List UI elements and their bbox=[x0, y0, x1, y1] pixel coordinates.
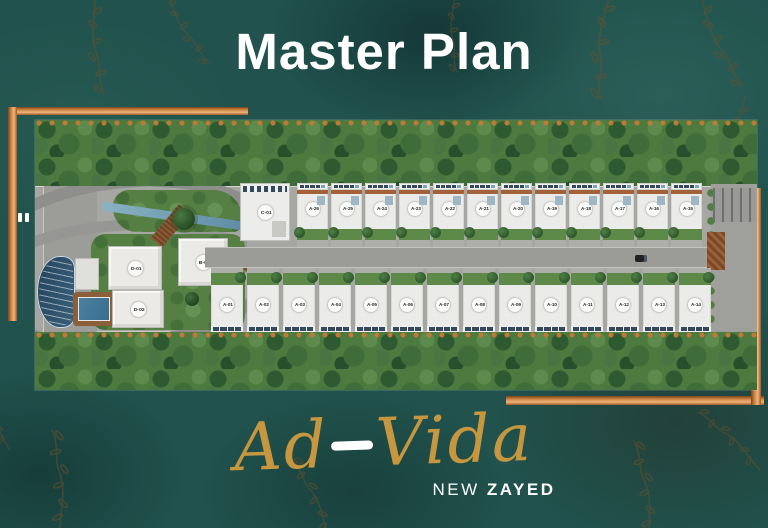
solar-panel bbox=[696, 327, 702, 331]
solar-panel bbox=[661, 185, 665, 188]
solar-panel bbox=[559, 185, 563, 188]
villa-window bbox=[317, 196, 325, 205]
villa-roof-panels bbox=[603, 183, 634, 190]
villa-body: A-12 bbox=[607, 285, 639, 326]
villa-roof-panels bbox=[365, 183, 396, 190]
villa-roof-panels bbox=[297, 183, 328, 190]
villa-roof-panels bbox=[571, 326, 603, 332]
parking-area bbox=[711, 184, 757, 332]
tree-icon bbox=[294, 227, 305, 238]
solar-panel bbox=[543, 185, 547, 188]
brand-logo: AdVida NEW ZAYED bbox=[0, 407, 768, 500]
unit-label-badge: A-13 bbox=[652, 298, 666, 312]
unit-label-badge: A-01 bbox=[220, 298, 234, 312]
villa-window bbox=[521, 196, 529, 205]
villa-roof-panels bbox=[679, 326, 711, 332]
solar-panel bbox=[402, 185, 406, 188]
villa-driveway bbox=[433, 240, 464, 247]
villa-roof-panels bbox=[637, 183, 668, 190]
car bbox=[635, 255, 647, 262]
unit-label-text: A-14 bbox=[691, 301, 699, 309]
tree-icon bbox=[396, 227, 407, 238]
solar-panel bbox=[429, 327, 435, 331]
solar-panel bbox=[378, 185, 382, 188]
solar-panel bbox=[321, 185, 325, 188]
unit-label-badge: A-05 bbox=[364, 298, 378, 312]
villa-unit-a-14: A-14 bbox=[679, 268, 711, 332]
villa-body: A-13 bbox=[643, 285, 675, 326]
unit-label-badge: A-02 bbox=[256, 298, 270, 312]
clubhouse-building: C-01 bbox=[240, 183, 290, 241]
solar-panel bbox=[554, 185, 558, 188]
villa-roof-panels bbox=[331, 183, 362, 190]
solar-panel bbox=[451, 327, 457, 331]
solar-panel bbox=[415, 327, 421, 331]
solar-panel bbox=[465, 327, 471, 331]
villa-body: A-14 bbox=[679, 285, 711, 326]
villa-body: A-20 bbox=[501, 194, 532, 229]
unit-label-badge: D-02 bbox=[131, 302, 146, 317]
unit-label-badge: A-03 bbox=[292, 298, 306, 312]
unit-label-text: A-19 bbox=[546, 205, 554, 213]
solar-panel bbox=[544, 327, 550, 331]
villa-roof-panels bbox=[535, 183, 566, 190]
unit-label-text: A-17 bbox=[614, 205, 622, 213]
tree-icon bbox=[487, 272, 498, 283]
villa-unit-a-26: A-26 bbox=[297, 183, 328, 247]
villa-driveway bbox=[331, 240, 362, 247]
villa-body: A-05 bbox=[355, 285, 387, 326]
villa-roof-panels bbox=[643, 326, 675, 332]
unit-label-badge: A-14 bbox=[688, 298, 702, 312]
unit-label-badge: A-08 bbox=[472, 298, 486, 312]
villa-body: A-07 bbox=[427, 285, 459, 326]
villa-garden bbox=[283, 273, 315, 285]
unit-label-text: A-11 bbox=[583, 301, 591, 309]
tree-icon bbox=[271, 272, 282, 283]
villa-garden bbox=[607, 273, 639, 285]
tree-icon bbox=[703, 272, 714, 283]
villa-body: A-04 bbox=[319, 285, 351, 326]
villa-body: A-06 bbox=[391, 285, 423, 326]
villa-unit-a-01: A-01 bbox=[211, 268, 243, 332]
solar-panel bbox=[407, 185, 411, 188]
tree-icon bbox=[559, 272, 570, 283]
villa-roof-panels bbox=[607, 326, 639, 332]
villa-row-north: C-01 A-26A-25A-24A-23A-22A-21A-20A-19A-1… bbox=[240, 183, 702, 247]
villa-garden bbox=[427, 273, 459, 285]
tree-icon bbox=[379, 272, 390, 283]
solar-panel bbox=[487, 327, 493, 331]
solar-panel bbox=[310, 185, 314, 188]
solar-panel bbox=[355, 185, 359, 188]
unit-label-text: A-13 bbox=[655, 301, 663, 309]
solar-panel bbox=[559, 327, 565, 331]
pergola bbox=[707, 232, 725, 270]
solar-panel bbox=[470, 185, 474, 188]
villa-window bbox=[419, 196, 427, 205]
villa-body: A-23 bbox=[399, 194, 430, 229]
tree-icon bbox=[532, 227, 543, 238]
solar-panel bbox=[418, 185, 422, 188]
unit-label-text: A-20 bbox=[512, 205, 520, 213]
unit-label-badge: A-11 bbox=[580, 298, 594, 312]
villa-body: A-17 bbox=[603, 194, 634, 229]
solar-panel bbox=[372, 327, 378, 331]
solar-panel bbox=[305, 185, 309, 188]
villa-driveway bbox=[365, 240, 396, 247]
solar-panel bbox=[486, 185, 490, 188]
solar-panel bbox=[660, 327, 666, 331]
solar-panel bbox=[537, 327, 543, 331]
villa-garden bbox=[365, 229, 396, 240]
villa-driveway bbox=[671, 240, 702, 247]
villa-window bbox=[385, 196, 393, 205]
solar-panel bbox=[436, 185, 440, 188]
solar-panel bbox=[588, 185, 592, 188]
villa-unit-a-17: A-17 bbox=[603, 183, 634, 247]
villa-roof-panels bbox=[211, 326, 243, 332]
villa-roof-panels bbox=[247, 326, 279, 332]
solar-panel bbox=[446, 185, 450, 188]
solar-panel bbox=[480, 185, 484, 188]
solar-panel bbox=[681, 327, 687, 331]
swimming-pool bbox=[78, 297, 110, 321]
unit-label-text: A-04 bbox=[331, 301, 339, 309]
unit-label-text: A-08 bbox=[475, 301, 483, 309]
villa-row-south: A-01A-02A-03A-04A-05A-06A-07A-08A-09A-10… bbox=[211, 268, 711, 332]
tree-icon bbox=[328, 227, 339, 238]
villa-window bbox=[657, 196, 665, 205]
unit-label-text: A-22 bbox=[444, 205, 452, 213]
villa-unit-a-18: A-18 bbox=[569, 183, 600, 247]
solar-panel bbox=[256, 327, 262, 331]
villa-window bbox=[589, 196, 597, 205]
solar-panel bbox=[504, 185, 508, 188]
solar-panel bbox=[321, 327, 327, 331]
unit-label-text: A-15 bbox=[682, 205, 690, 213]
villa-roof-panels bbox=[427, 326, 459, 332]
villa-window bbox=[623, 196, 631, 205]
villa-body: A-03 bbox=[283, 285, 315, 326]
villa-garden bbox=[679, 273, 711, 285]
solar-panel bbox=[684, 185, 688, 188]
solar-panel bbox=[645, 327, 651, 331]
villa-garden bbox=[391, 273, 423, 285]
solar-panel bbox=[364, 327, 370, 331]
villa-garden bbox=[501, 229, 532, 240]
unit-label-text: A-18 bbox=[580, 205, 588, 213]
solar-panel bbox=[336, 327, 342, 331]
solar-panel bbox=[538, 185, 542, 188]
villa-garden bbox=[569, 229, 600, 240]
solar-panel bbox=[695, 185, 699, 188]
villa-body: A-25 bbox=[331, 194, 362, 229]
villa-unit-a-24: A-24 bbox=[365, 183, 396, 247]
tree-icon bbox=[668, 227, 679, 238]
villa-body: A-15 bbox=[671, 194, 702, 229]
villa-unit-a-20: A-20 bbox=[501, 183, 532, 247]
villa-unit-a-13: A-13 bbox=[643, 268, 675, 332]
solar-panel bbox=[656, 185, 660, 188]
solar-panel bbox=[609, 327, 615, 331]
tree-icon bbox=[566, 227, 577, 238]
solar-panel bbox=[344, 185, 348, 188]
villa-window bbox=[487, 196, 495, 205]
villa-body: A-22 bbox=[433, 194, 464, 229]
villa-garden bbox=[643, 273, 675, 285]
solar-panel bbox=[616, 185, 620, 188]
tree-icon bbox=[634, 227, 645, 238]
villa-driveway bbox=[637, 240, 668, 247]
frame-accent-left-vertical bbox=[8, 107, 17, 321]
solar-panel bbox=[572, 185, 576, 188]
unit-label-text: A-06 bbox=[403, 301, 411, 309]
villa-body: A-21 bbox=[467, 194, 498, 229]
villa-garden bbox=[463, 273, 495, 285]
solar-panel bbox=[509, 185, 513, 188]
villa-unit-a-21: A-21 bbox=[467, 183, 498, 247]
unit-label-text: A-16 bbox=[648, 205, 656, 213]
entrance-gate-mark bbox=[25, 213, 29, 222]
unit-label-text: A-12 bbox=[619, 301, 627, 309]
solar-panel bbox=[472, 327, 478, 331]
building-d01: D-01 bbox=[108, 246, 162, 290]
villa-roof-panels bbox=[499, 326, 531, 332]
villa-body: A-08 bbox=[463, 285, 495, 326]
solar-panel bbox=[384, 185, 388, 188]
villa-roof-panels bbox=[391, 326, 423, 332]
tree-icon bbox=[307, 272, 318, 283]
villa-roof-panels bbox=[569, 183, 600, 190]
villa-roof-panels bbox=[283, 326, 315, 332]
solar-panel bbox=[316, 185, 320, 188]
solar-panel bbox=[667, 327, 673, 331]
north-forest-band bbox=[35, 120, 757, 186]
solar-panel bbox=[595, 327, 601, 331]
villa-unit-a-19: A-19 bbox=[535, 183, 566, 247]
villa-body: A-01 bbox=[211, 285, 243, 326]
villa-driveway bbox=[297, 240, 328, 247]
solar-panel bbox=[373, 185, 377, 188]
solar-panel bbox=[631, 327, 637, 331]
unit-label-badge: A-07 bbox=[436, 298, 450, 312]
solar-panel bbox=[690, 185, 694, 188]
solar-panel bbox=[588, 327, 594, 331]
villa-garden bbox=[637, 229, 668, 240]
solar-panel bbox=[514, 185, 518, 188]
unit-label-text: A-26 bbox=[308, 205, 316, 213]
brand-hyphen bbox=[331, 440, 373, 450]
unit-label-text: A-03 bbox=[295, 301, 303, 309]
villa-garden bbox=[499, 273, 531, 285]
tree-icon bbox=[464, 227, 475, 238]
tree-icon bbox=[451, 272, 462, 283]
solar-panel bbox=[652, 327, 658, 331]
solar-panel bbox=[480, 327, 486, 331]
villa-garden bbox=[603, 229, 634, 240]
unit-label-text: A-10 bbox=[547, 301, 555, 309]
unit-label-badge: A-12 bbox=[616, 298, 630, 312]
page-title: Master Plan bbox=[0, 22, 768, 81]
villa-roof-panels bbox=[319, 326, 351, 332]
tree-icon bbox=[600, 227, 611, 238]
villa-window bbox=[691, 196, 699, 205]
solar-panel bbox=[307, 327, 313, 331]
villa-body: A-26 bbox=[297, 194, 328, 229]
solar-panel bbox=[271, 327, 277, 331]
solar-panel bbox=[292, 327, 298, 331]
villa-unit-a-06: A-06 bbox=[391, 268, 423, 332]
solar-panel bbox=[350, 185, 354, 188]
villa-unit-a-23: A-23 bbox=[399, 183, 430, 247]
solar-panel bbox=[622, 185, 626, 188]
solar-panel bbox=[508, 327, 514, 331]
solar-panel bbox=[235, 327, 241, 331]
solar-panel bbox=[573, 327, 579, 331]
villa-garden bbox=[297, 229, 328, 240]
villa-unit-a-10: A-10 bbox=[535, 268, 567, 332]
villa-body: A-10 bbox=[535, 285, 567, 326]
solar-panel bbox=[475, 185, 479, 188]
solar-panel bbox=[523, 327, 529, 331]
villa-driveway bbox=[467, 240, 498, 247]
south-forest-band bbox=[35, 332, 757, 390]
unit-label-badge: C-01 bbox=[258, 205, 273, 220]
tree-icon bbox=[595, 272, 606, 283]
solar-panel bbox=[339, 185, 343, 188]
villa-garden bbox=[211, 273, 243, 285]
villa-unit-a-02: A-02 bbox=[247, 268, 279, 332]
villa-unit-a-11: A-11 bbox=[571, 268, 603, 332]
villa-roof-panels bbox=[355, 326, 387, 332]
villa-window bbox=[555, 196, 563, 205]
solar-panel bbox=[688, 327, 694, 331]
solar-panel bbox=[393, 327, 399, 331]
villa-roof-panels bbox=[501, 183, 532, 190]
villa-unit-a-16: A-16 bbox=[637, 183, 668, 247]
solar-panel bbox=[264, 327, 270, 331]
solar-panel bbox=[501, 327, 507, 331]
solar-panel bbox=[285, 327, 291, 331]
tree-icon bbox=[498, 227, 509, 238]
villa-body: A-16 bbox=[637, 194, 668, 229]
solar-panel bbox=[457, 185, 461, 188]
villa-unit-a-12: A-12 bbox=[607, 268, 639, 332]
villa-garden bbox=[331, 229, 362, 240]
villa-body: A-18 bbox=[569, 194, 600, 229]
solar-panel bbox=[379, 327, 385, 331]
solar-panel bbox=[516, 327, 522, 331]
solar-panel bbox=[300, 185, 304, 188]
solar-panel bbox=[368, 185, 372, 188]
villa-garden bbox=[571, 273, 603, 285]
unit-label-badge: A-09 bbox=[508, 298, 522, 312]
solar-panel bbox=[228, 327, 234, 331]
villa-unit-a-04: A-04 bbox=[319, 268, 351, 332]
unit-label-text: A-25 bbox=[342, 205, 350, 213]
tree-icon bbox=[343, 272, 354, 283]
villa-garden bbox=[535, 273, 567, 285]
villa-body: A-11 bbox=[571, 285, 603, 326]
unit-label-badge: D-01 bbox=[128, 261, 143, 276]
solar-panel bbox=[552, 327, 558, 331]
tree-icon bbox=[523, 272, 534, 283]
parking-stalls bbox=[713, 188, 755, 222]
villa-roof-panels bbox=[467, 183, 498, 190]
tree-icon bbox=[667, 272, 678, 283]
solar-panel bbox=[577, 185, 581, 188]
tree-icon bbox=[173, 208, 195, 230]
villa-driveway bbox=[399, 240, 430, 247]
unit-label-text: A-01 bbox=[223, 301, 231, 309]
solar-panel bbox=[400, 327, 406, 331]
frame-accent-bottom-horizontal bbox=[506, 396, 764, 405]
solar-panel bbox=[249, 327, 255, 331]
unit-label-text: A-09 bbox=[511, 301, 519, 309]
villa-driveway bbox=[535, 240, 566, 247]
villa-roof-panels bbox=[399, 183, 430, 190]
unit-label-text: A-07 bbox=[439, 301, 447, 309]
brand-name: AdVida bbox=[233, 402, 534, 485]
villa-driveway bbox=[501, 240, 532, 247]
terrace-building bbox=[75, 258, 99, 290]
villa-body: A-19 bbox=[535, 194, 566, 229]
solar-panel bbox=[520, 185, 524, 188]
frame-accent-top-horizontal bbox=[8, 107, 248, 115]
villa-roof-panels bbox=[463, 326, 495, 332]
curved-glass-building bbox=[37, 256, 75, 328]
villa-window bbox=[453, 196, 461, 205]
tree-icon bbox=[235, 272, 246, 283]
main-road bbox=[205, 247, 757, 268]
villa-roof-panels bbox=[671, 183, 702, 190]
villa-driveway bbox=[569, 240, 600, 247]
solar-panel bbox=[640, 185, 644, 188]
villa-garden bbox=[467, 229, 498, 240]
tree-icon bbox=[430, 227, 441, 238]
solar-panel bbox=[423, 185, 427, 188]
solar-panel bbox=[606, 185, 610, 188]
solar-panel bbox=[582, 185, 586, 188]
villa-garden bbox=[671, 229, 702, 240]
solar-panel bbox=[674, 185, 678, 188]
solar-panel bbox=[412, 185, 416, 188]
villa-window bbox=[351, 196, 359, 205]
villa-garden bbox=[399, 229, 430, 240]
unit-label-text: A-05 bbox=[367, 301, 375, 309]
solar-panel bbox=[213, 327, 219, 331]
entrance-gate-mark bbox=[18, 213, 22, 222]
solar-panel bbox=[611, 185, 615, 188]
solar-panel bbox=[343, 327, 349, 331]
villa-unit-a-08: A-08 bbox=[463, 268, 495, 332]
solar-panel bbox=[548, 185, 552, 188]
solar-panel bbox=[580, 327, 586, 331]
solar-panel bbox=[328, 327, 334, 331]
solar-panel bbox=[650, 185, 654, 188]
building-d02: D-02 bbox=[112, 290, 164, 328]
brand-subtitle: NEW ZAYED bbox=[0, 480, 768, 500]
solar-panel bbox=[300, 327, 306, 331]
villa-unit-a-07: A-07 bbox=[427, 268, 459, 332]
villa-unit-a-22: A-22 bbox=[433, 183, 464, 247]
unit-label-badge: A-10 bbox=[544, 298, 558, 312]
solar-panel bbox=[389, 185, 393, 188]
solar-panel bbox=[593, 185, 597, 188]
villa-unit-a-05: A-05 bbox=[355, 268, 387, 332]
villa-unit-a-25: A-25 bbox=[331, 183, 362, 247]
